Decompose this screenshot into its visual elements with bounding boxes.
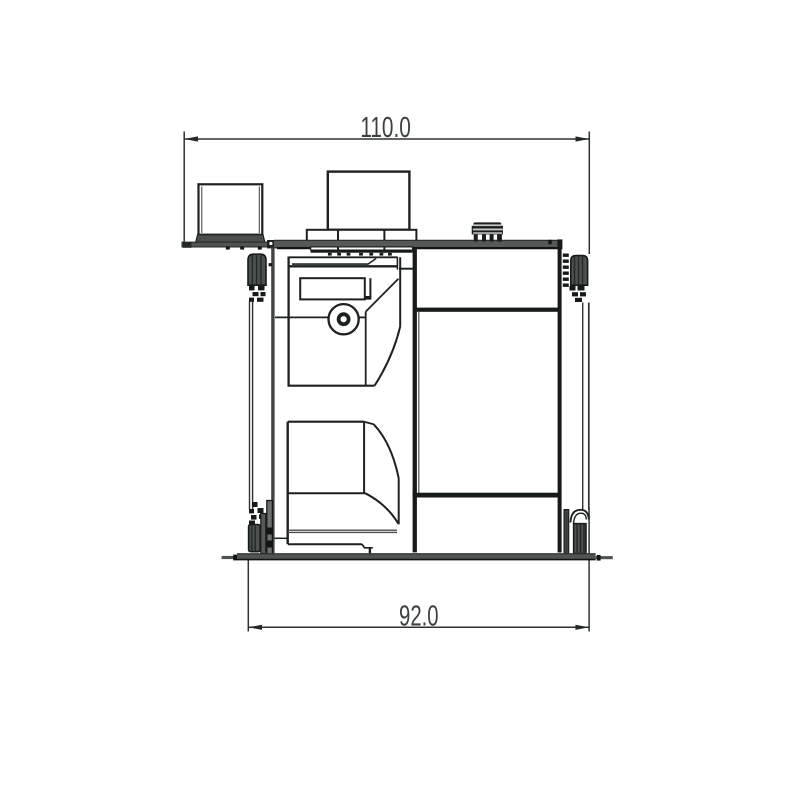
- svg-text:110.0: 110.0: [360, 112, 411, 144]
- svg-text:92.0: 92.0: [399, 601, 439, 633]
